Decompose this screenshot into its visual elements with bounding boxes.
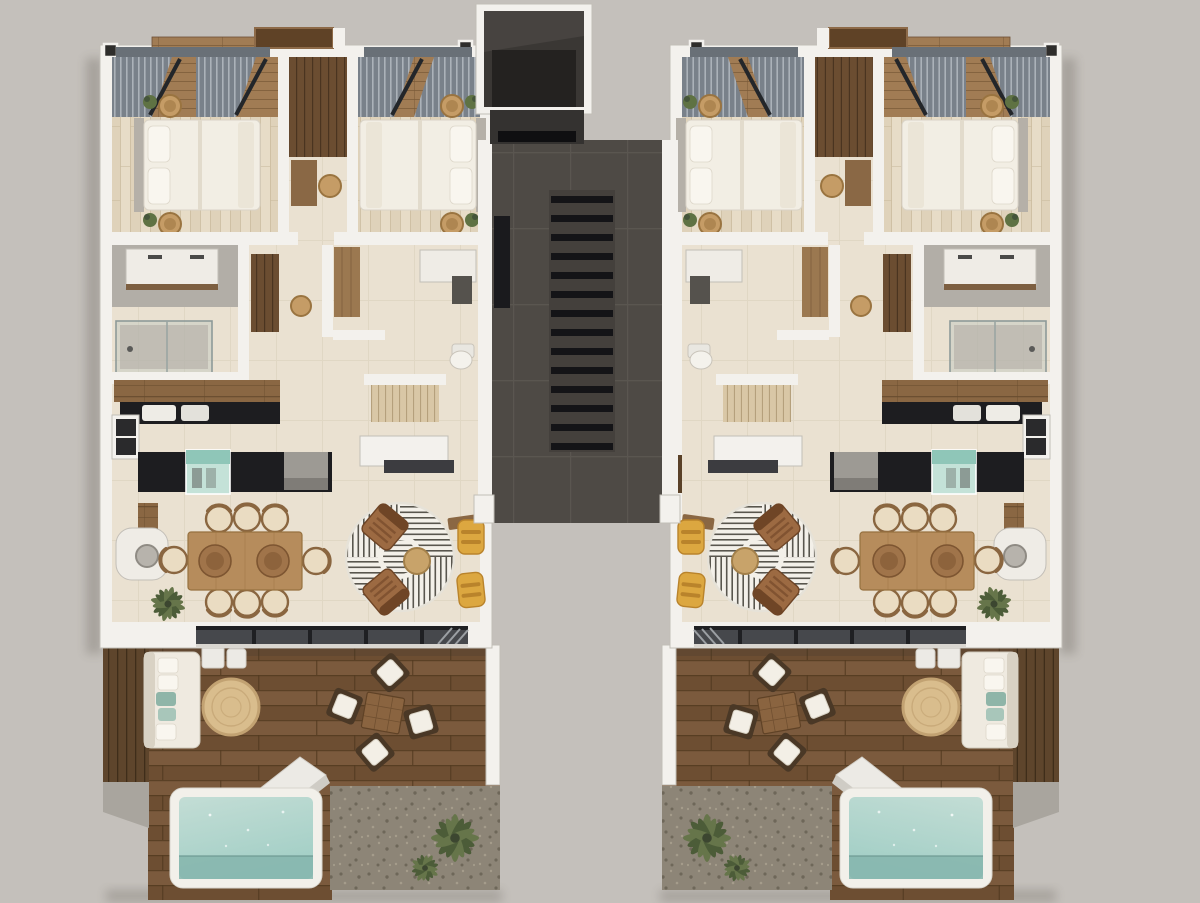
core-pillar <box>660 495 680 523</box>
unit-left <box>86 28 502 902</box>
stair-void <box>494 216 510 308</box>
core-wall-right <box>662 140 678 523</box>
elevator-shaft <box>476 4 592 144</box>
core-wall-left <box>478 140 492 523</box>
floorplan-svg: Top-down 3D architectural render of a re… <box>0 0 1200 903</box>
elevator-door-gap <box>498 131 576 142</box>
floorplan-render: Top-down 3D architectural render of a re… <box>0 0 1200 903</box>
staircase <box>549 190 615 452</box>
core-pillar <box>474 495 494 523</box>
unit-right <box>660 28 1076 902</box>
